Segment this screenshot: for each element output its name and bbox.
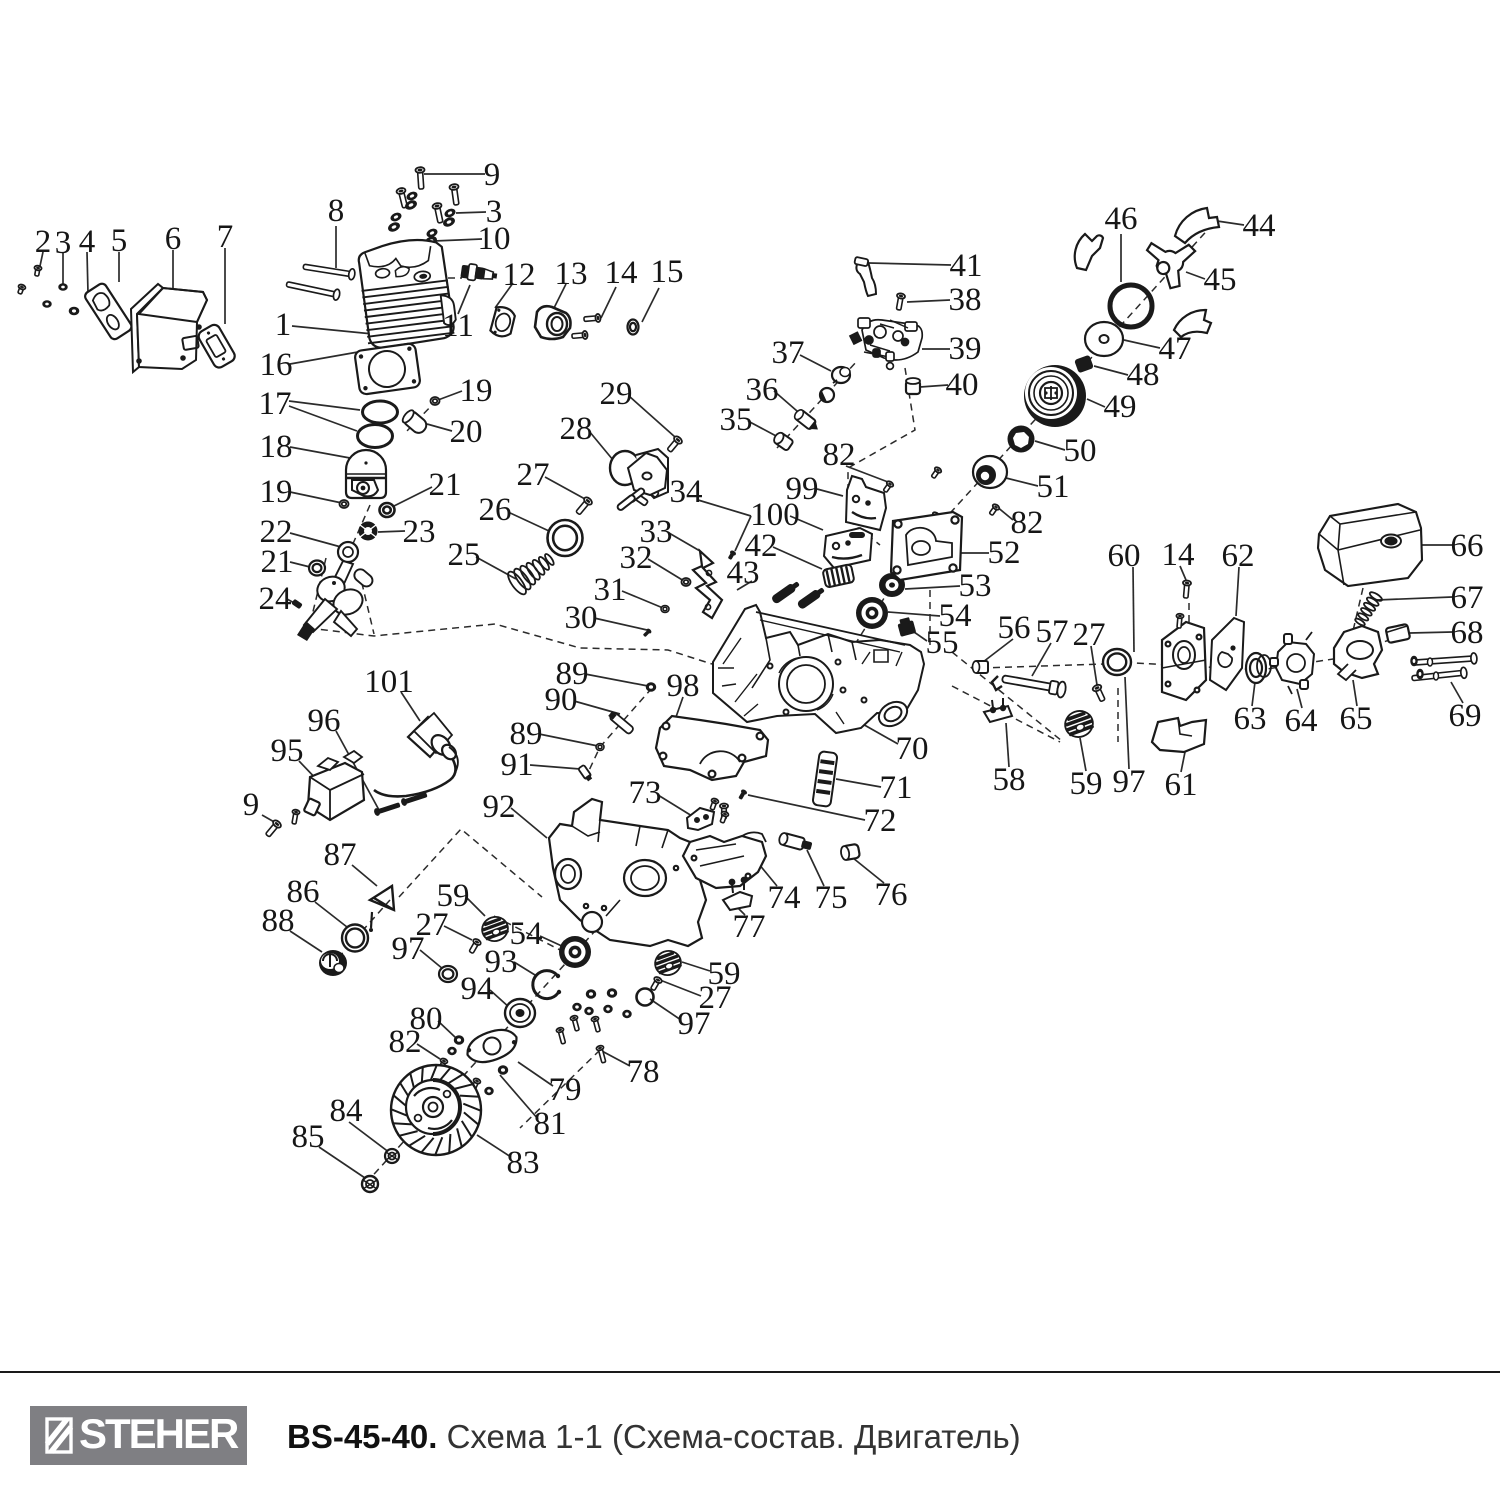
svg-text:12: 12 xyxy=(503,257,536,293)
svg-text:31: 31 xyxy=(594,572,627,608)
svg-text:88: 88 xyxy=(262,903,295,939)
svg-text:13: 13 xyxy=(555,256,588,292)
svg-text:64: 64 xyxy=(1285,703,1318,739)
svg-text:49: 49 xyxy=(1104,389,1137,425)
svg-text:47: 47 xyxy=(1159,331,1192,367)
svg-text:16: 16 xyxy=(260,347,293,383)
svg-text:55: 55 xyxy=(926,625,959,661)
svg-text:77: 77 xyxy=(733,909,766,945)
svg-text:71: 71 xyxy=(880,770,913,806)
svg-text:11: 11 xyxy=(442,308,474,344)
svg-text:6: 6 xyxy=(165,221,182,257)
svg-text:63: 63 xyxy=(1234,701,1267,737)
svg-text:7: 7 xyxy=(217,219,234,255)
svg-text:14: 14 xyxy=(605,255,638,291)
svg-text:8: 8 xyxy=(328,193,345,229)
svg-text:37: 37 xyxy=(772,335,805,371)
svg-text:101: 101 xyxy=(364,664,414,700)
svg-text:44: 44 xyxy=(1243,208,1276,244)
svg-text:21: 21 xyxy=(261,544,294,580)
svg-text:27: 27 xyxy=(1073,617,1106,653)
svg-text:5: 5 xyxy=(111,223,128,259)
svg-text:40: 40 xyxy=(946,367,979,403)
svg-text:43: 43 xyxy=(727,555,760,591)
svg-text:26: 26 xyxy=(479,492,512,528)
svg-text:70: 70 xyxy=(896,731,929,767)
svg-text:84: 84 xyxy=(330,1093,363,1129)
svg-text:19: 19 xyxy=(460,373,493,409)
svg-text:94: 94 xyxy=(461,971,494,1007)
svg-text:97: 97 xyxy=(1113,764,1146,800)
svg-text:97: 97 xyxy=(678,1006,711,1042)
svg-text:23: 23 xyxy=(403,514,436,550)
svg-text:41: 41 xyxy=(950,248,983,284)
svg-text:33: 33 xyxy=(640,514,673,550)
svg-text:18: 18 xyxy=(260,429,293,465)
svg-text:85: 85 xyxy=(292,1119,325,1155)
svg-text:75: 75 xyxy=(815,880,848,916)
svg-text:78: 78 xyxy=(627,1054,660,1090)
svg-text:62: 62 xyxy=(1222,538,1255,574)
svg-text:19: 19 xyxy=(260,474,293,510)
svg-text:95: 95 xyxy=(271,733,304,769)
svg-text:4: 4 xyxy=(79,224,96,260)
svg-text:66: 66 xyxy=(1451,528,1484,564)
svg-text:20: 20 xyxy=(450,414,483,450)
svg-text:73: 73 xyxy=(629,775,662,811)
svg-text:82: 82 xyxy=(823,437,856,473)
svg-text:28: 28 xyxy=(560,411,593,447)
svg-text:9: 9 xyxy=(484,157,501,193)
svg-text:17: 17 xyxy=(259,386,292,422)
svg-text:50: 50 xyxy=(1064,433,1097,469)
svg-text:96: 96 xyxy=(308,703,341,739)
svg-text:68: 68 xyxy=(1451,615,1484,651)
svg-text:72: 72 xyxy=(864,803,897,839)
svg-text:59: 59 xyxy=(1070,766,1103,802)
svg-text:46: 46 xyxy=(1105,201,1138,237)
svg-text:91: 91 xyxy=(501,747,534,783)
svg-text:82: 82 xyxy=(389,1024,422,1060)
svg-text:69: 69 xyxy=(1449,698,1482,734)
svg-text:58: 58 xyxy=(993,762,1026,798)
svg-text:21: 21 xyxy=(429,467,462,503)
svg-text:STEHER: STEHER xyxy=(79,1410,239,1457)
svg-text:90: 90 xyxy=(545,682,578,718)
svg-text:97: 97 xyxy=(392,931,425,967)
svg-text:24: 24 xyxy=(259,581,292,617)
svg-text:83: 83 xyxy=(507,1145,540,1181)
svg-text:65: 65 xyxy=(1340,701,1373,737)
svg-text:34: 34 xyxy=(670,474,703,510)
svg-text:27: 27 xyxy=(517,457,550,493)
svg-text:10: 10 xyxy=(478,221,511,257)
svg-text:25: 25 xyxy=(448,537,481,573)
svg-text:2: 2 xyxy=(35,224,52,260)
svg-text:BS-45-40. Схема 1-1 (Схема-сос: BS-45-40. Схема 1-1 (Схема-состав. Двига… xyxy=(287,1418,1021,1455)
svg-text:81: 81 xyxy=(534,1106,567,1142)
svg-text:67: 67 xyxy=(1451,580,1484,616)
svg-text:76: 76 xyxy=(875,877,908,913)
svg-text:9: 9 xyxy=(243,787,260,823)
svg-text:48: 48 xyxy=(1127,357,1160,393)
svg-text:45: 45 xyxy=(1204,262,1237,298)
svg-text:15: 15 xyxy=(651,254,684,290)
svg-text:3: 3 xyxy=(55,225,72,261)
svg-text:57: 57 xyxy=(1036,614,1069,650)
svg-text:56: 56 xyxy=(998,610,1031,646)
svg-text:36: 36 xyxy=(746,372,779,408)
svg-text:39: 39 xyxy=(949,331,982,367)
svg-text:79: 79 xyxy=(549,1072,582,1108)
svg-text:61: 61 xyxy=(1165,767,1198,803)
svg-text:14: 14 xyxy=(1162,537,1195,573)
svg-text:1: 1 xyxy=(275,307,292,343)
svg-text:51: 51 xyxy=(1037,469,1070,505)
svg-text:29: 29 xyxy=(600,376,633,412)
svg-text:52: 52 xyxy=(988,535,1021,571)
svg-text:87: 87 xyxy=(324,837,357,873)
svg-text:92: 92 xyxy=(483,789,516,825)
svg-text:38: 38 xyxy=(949,282,982,318)
svg-text:74: 74 xyxy=(768,880,801,916)
svg-text:98: 98 xyxy=(667,668,700,704)
svg-text:100: 100 xyxy=(750,497,800,533)
svg-text:60: 60 xyxy=(1108,538,1141,574)
